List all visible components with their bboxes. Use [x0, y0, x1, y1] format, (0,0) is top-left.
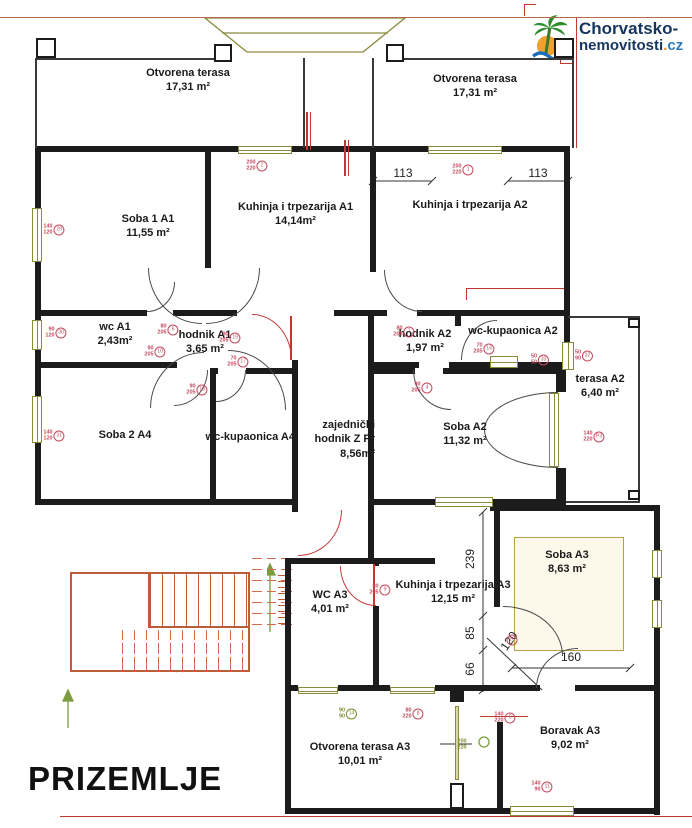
thin-wall-line	[572, 58, 574, 148]
room-area: 8,63 m²	[507, 562, 627, 576]
room-name: Soba 2 A4	[65, 428, 185, 442]
marker-size-text: 90 205	[144, 347, 153, 358]
room-label-kuhinja-trpezarija-a1: Kuhinja i trpezarija A114,14m²	[228, 200, 363, 229]
wall-segment	[368, 310, 374, 368]
room-label-zajednicki-hodnik-z-pr: zajednički hodnik Z Pr8,56m²	[299, 418, 375, 461]
window	[32, 396, 42, 443]
stair-dash-gap	[122, 654, 248, 657]
window	[238, 146, 292, 154]
marker-size-text: 70 205	[473, 344, 482, 355]
marker-size-text: 140 120	[43, 431, 52, 442]
wall-segment	[373, 310, 387, 316]
marker-size-text: 80 205	[369, 585, 378, 596]
marker-ref-circle: 30	[56, 328, 67, 339]
crop-mark	[524, 4, 536, 16]
window	[562, 342, 574, 370]
marker-size-text: 90 90	[339, 709, 345, 720]
thin-wall-line	[35, 58, 215, 60]
marker-size-text: 200 220	[246, 161, 255, 172]
wall-segment	[417, 310, 564, 316]
dim-terrace-right: 113	[514, 166, 562, 180]
wall-segment	[35, 499, 298, 505]
stair-treads-dashed	[122, 630, 248, 672]
wall-segment	[338, 685, 390, 691]
dim-85: 85	[463, 618, 477, 648]
window	[510, 806, 574, 816]
room-area: 11,32 m²	[405, 434, 525, 448]
window	[652, 550, 662, 578]
room-label-terasa-a2: terasa A26,40 m²	[540, 372, 660, 401]
size-marker: 80 2059	[369, 585, 390, 596]
marker-size-text: 50 90	[575, 351, 581, 362]
room-name: Otvorena terasa	[98, 66, 278, 80]
size-marker: 90 2054	[411, 383, 432, 394]
marker-ref-circle: 13	[197, 385, 208, 396]
room-name: Soba A2	[405, 420, 525, 434]
wall-segment	[285, 558, 291, 690]
wall-segment	[285, 685, 298, 691]
marker-ref-circle: 17	[238, 357, 249, 368]
marker-size-text: 200 220	[452, 165, 461, 176]
size-marker: 80 2057	[393, 327, 414, 338]
size-marker: 90 20513	[186, 385, 207, 396]
room-name: Kuhinja i trpezarija A2	[400, 198, 540, 212]
thin-wall-line	[566, 501, 640, 503]
thin-wall-line	[404, 58, 574, 60]
room-label-wc-kupaonica-a2: wc-kupaonica A2	[448, 324, 578, 338]
thin-wall-line	[638, 316, 640, 503]
room-name: Kuhinja i trpezarija A1	[228, 200, 363, 214]
size-marker: 80 2056	[157, 325, 178, 336]
size-marker: 140 9011	[531, 782, 552, 793]
size-marker: 90 20519	[219, 333, 240, 344]
pillar	[628, 490, 640, 500]
utility-red-line	[348, 140, 349, 176]
wall-segment	[373, 368, 415, 374]
window	[435, 497, 493, 507]
wall-segment	[497, 685, 540, 691]
room-label-otvorena-terasa-left: Otvorena terasa17,31 m²	[98, 66, 278, 95]
room-name: Otvorena terasa A3	[270, 740, 450, 754]
marker-ref-circle: 11	[542, 782, 553, 793]
marker-size-text: 70 205	[227, 357, 236, 368]
wall-segment	[370, 146, 376, 272]
marker-ref-circle: 19	[230, 333, 241, 344]
room-area: 1,97 m²	[375, 341, 475, 355]
marker-ref-circle: 31	[54, 431, 65, 442]
marker-size-text: 90 205	[186, 385, 195, 396]
utility-red-line	[60, 816, 692, 817]
pillar	[214, 44, 232, 62]
room-name: Kuhinja i trpezarija A3	[388, 578, 518, 592]
room-area: 17,31 m²	[385, 86, 565, 100]
size-marker: 70 20514	[473, 344, 494, 355]
wall-segment	[654, 690, 660, 815]
room-name: Boravak A3	[500, 724, 640, 738]
plan-lines-layer	[0, 0, 692, 828]
wall-segment	[490, 505, 660, 511]
site-logo: Chorvatsko- nemovitosti.cz	[528, 14, 683, 60]
window	[652, 600, 662, 628]
room-area: 8,56m²	[299, 447, 375, 461]
room-area: 12,15 m²	[388, 592, 518, 606]
room-area: 11,55 m²	[78, 226, 218, 240]
marker-size-text: 200 220	[457, 740, 466, 751]
wall-segment	[574, 808, 660, 814]
wall-segment	[368, 368, 374, 560]
room-label-otvorena-terasa-a3: Otvorena terasa A310,01 m²	[270, 740, 450, 769]
room-area: 6,40 m²	[540, 386, 660, 400]
marker-ref-circle: 7	[404, 327, 415, 338]
pillar	[554, 38, 574, 58]
wall-segment	[564, 146, 570, 316]
marker-size-text: 80 205	[157, 325, 166, 336]
wall-segment	[35, 350, 41, 396]
marker-size-text: 140 220	[494, 713, 503, 724]
window	[298, 687, 338, 694]
wall-segment	[373, 606, 379, 691]
stair-treads	[150, 574, 248, 626]
marker-ref-circle: 26	[507, 635, 518, 646]
utility-red-line	[310, 112, 311, 150]
marker-size-text: 140 90	[531, 782, 540, 793]
marker-ref-circle: 8	[413, 709, 424, 720]
dim-terrace-left: 113	[379, 166, 427, 180]
room-area: 14,14m²	[228, 214, 363, 228]
wall-segment	[334, 310, 370, 316]
room-label-soba-a2: Soba A211,32 m²	[405, 420, 525, 449]
pillar	[36, 38, 56, 58]
stair-divider	[150, 626, 250, 628]
room-label-soba-1-a1: Soba 1 A111,55 m²	[78, 212, 218, 241]
wall-segment	[285, 558, 377, 564]
dim-66: 66	[463, 654, 477, 684]
wall-segment	[205, 146, 211, 268]
size-marker: 200 220	[457, 740, 466, 751]
wall-segment	[654, 505, 660, 550]
window	[32, 208, 42, 262]
window	[390, 687, 435, 694]
marker-size-text: 80 205	[393, 327, 402, 338]
stair-dash-gap	[122, 640, 248, 643]
marker-ref-circle: 4	[422, 383, 433, 394]
logo-line2: nemovitosti.cz	[579, 38, 683, 54]
marker-ref-circle: 2	[257, 161, 268, 172]
marker-ref-circle: 32	[582, 351, 593, 362]
room-label-soba-a3: Soba A38,63 m²	[507, 548, 627, 577]
size-marker: 90 20510	[144, 347, 165, 358]
wall-segment	[435, 685, 497, 691]
room-name: terasa A2	[540, 372, 660, 386]
pillar	[628, 318, 640, 328]
room-name: zajednički hodnik Z Pr	[299, 418, 375, 447]
wall-segment	[35, 362, 177, 368]
pillar	[450, 783, 464, 809]
wall-segment	[654, 578, 660, 600]
marker-size-text: 90 205	[219, 333, 228, 344]
wall-segment	[502, 146, 570, 152]
marker-ref-circle: 14	[346, 709, 357, 720]
room-label-boravak-a3: Boravak A39,02 m²	[500, 724, 640, 753]
marker-size-text: 80 220	[402, 709, 411, 720]
marker-size-text: 50 50	[531, 355, 537, 366]
wall-segment	[450, 690, 464, 702]
marker-ref-circle: 33	[538, 355, 549, 366]
utility-red-line	[344, 140, 346, 176]
floor-title: PRIZEMLJE	[28, 760, 222, 798]
thin-wall-line	[35, 58, 37, 148]
size-marker: 80 2208	[402, 709, 423, 720]
stair-dash-gap	[262, 558, 267, 632]
room-name: wc-kupaonica A2	[448, 324, 578, 338]
marker-ref-circle: 6	[168, 325, 179, 336]
room-area: 4,01 m²	[270, 602, 390, 616]
size-marker: 140 220P3	[583, 432, 604, 443]
marker-ref-circle: 14	[484, 344, 495, 355]
marker-ref-circle: 9	[380, 585, 391, 596]
marker-ref-circle: 5	[505, 713, 516, 724]
size-marker: 200 2201	[452, 165, 473, 176]
room-name: Soba A3	[507, 548, 627, 562]
marker-size-text: 140 220	[583, 432, 592, 443]
size-marker: 50 5033	[531, 355, 549, 366]
stair-divider	[148, 572, 150, 628]
room-name: Otvorena terasa	[385, 72, 565, 86]
room-label-soba-2-a4: Soba 2 A4	[65, 428, 185, 442]
dim-239: 239	[463, 539, 477, 579]
marker-ref-circle: 29	[54, 225, 65, 236]
wall-segment	[285, 808, 510, 814]
utility-red-line	[0, 17, 692, 18]
thin-wall-line	[303, 58, 305, 148]
floor-plan: Chorvatsko- nemovitosti.cz PRIZEMLJE 113…	[0, 0, 692, 828]
room-label-kuhinja-trpezarija-a2: Kuhinja i trpezarija A2	[400, 198, 540, 212]
room-area: 10,01 m²	[270, 754, 450, 768]
pillar	[386, 44, 404, 62]
thin-wall-line	[372, 58, 374, 148]
size-marker: 140 2205	[494, 713, 515, 724]
marker-ref-circle: 1	[463, 165, 474, 176]
wall-segment	[654, 628, 660, 690]
wall-segment	[292, 146, 428, 152]
utility-red-line	[306, 112, 308, 150]
utility-red-line	[466, 288, 467, 300]
logo-text: Chorvatsko- nemovitosti.cz	[579, 20, 683, 54]
wall-segment	[35, 310, 147, 316]
marker-ref-circle: P3	[594, 432, 605, 443]
window	[428, 146, 502, 154]
wall-segment	[35, 146, 41, 208]
size-marker: 26	[507, 635, 518, 646]
logo-line1: Chorvatsko-	[579, 20, 683, 38]
wall-segment	[35, 443, 41, 505]
size-marker: 200 2202	[246, 161, 267, 172]
marker-size-text: 140 120	[43, 225, 52, 236]
window	[32, 320, 42, 350]
utility-red-line	[466, 288, 564, 289]
size-marker: 70 20517	[227, 357, 248, 368]
marker-size-text: 90 120	[45, 328, 54, 339]
room-label-kuhinja-trpezarija-a3: Kuhinja i trpezarija A312,15 m²	[388, 578, 518, 607]
room-area: 17,31 m²	[98, 80, 278, 94]
size-marker: 140 12029	[43, 225, 64, 236]
room-name: wc-kupaonica A4	[200, 430, 295, 444]
size-marker: 90 9014	[339, 709, 357, 720]
marker-size-text: 90 205	[411, 383, 420, 394]
room-name: Soba 1 A1	[78, 212, 218, 226]
wall-segment	[377, 558, 435, 564]
size-marker: 140 12031	[43, 431, 64, 442]
marker-ref-circle: 10	[155, 347, 166, 358]
room-label-wc-kupaonica-a4: wc-kupaonica A4	[200, 430, 295, 444]
wall-segment	[575, 685, 660, 691]
room-label-otvorena-terasa-right: Otvorena terasa17,31 m²	[385, 72, 565, 101]
utility-red-line	[576, 18, 577, 148]
size-marker: 50 9032	[575, 351, 593, 362]
size-marker: 90 12030	[45, 328, 66, 339]
room-area: 9,02 m²	[500, 738, 640, 752]
